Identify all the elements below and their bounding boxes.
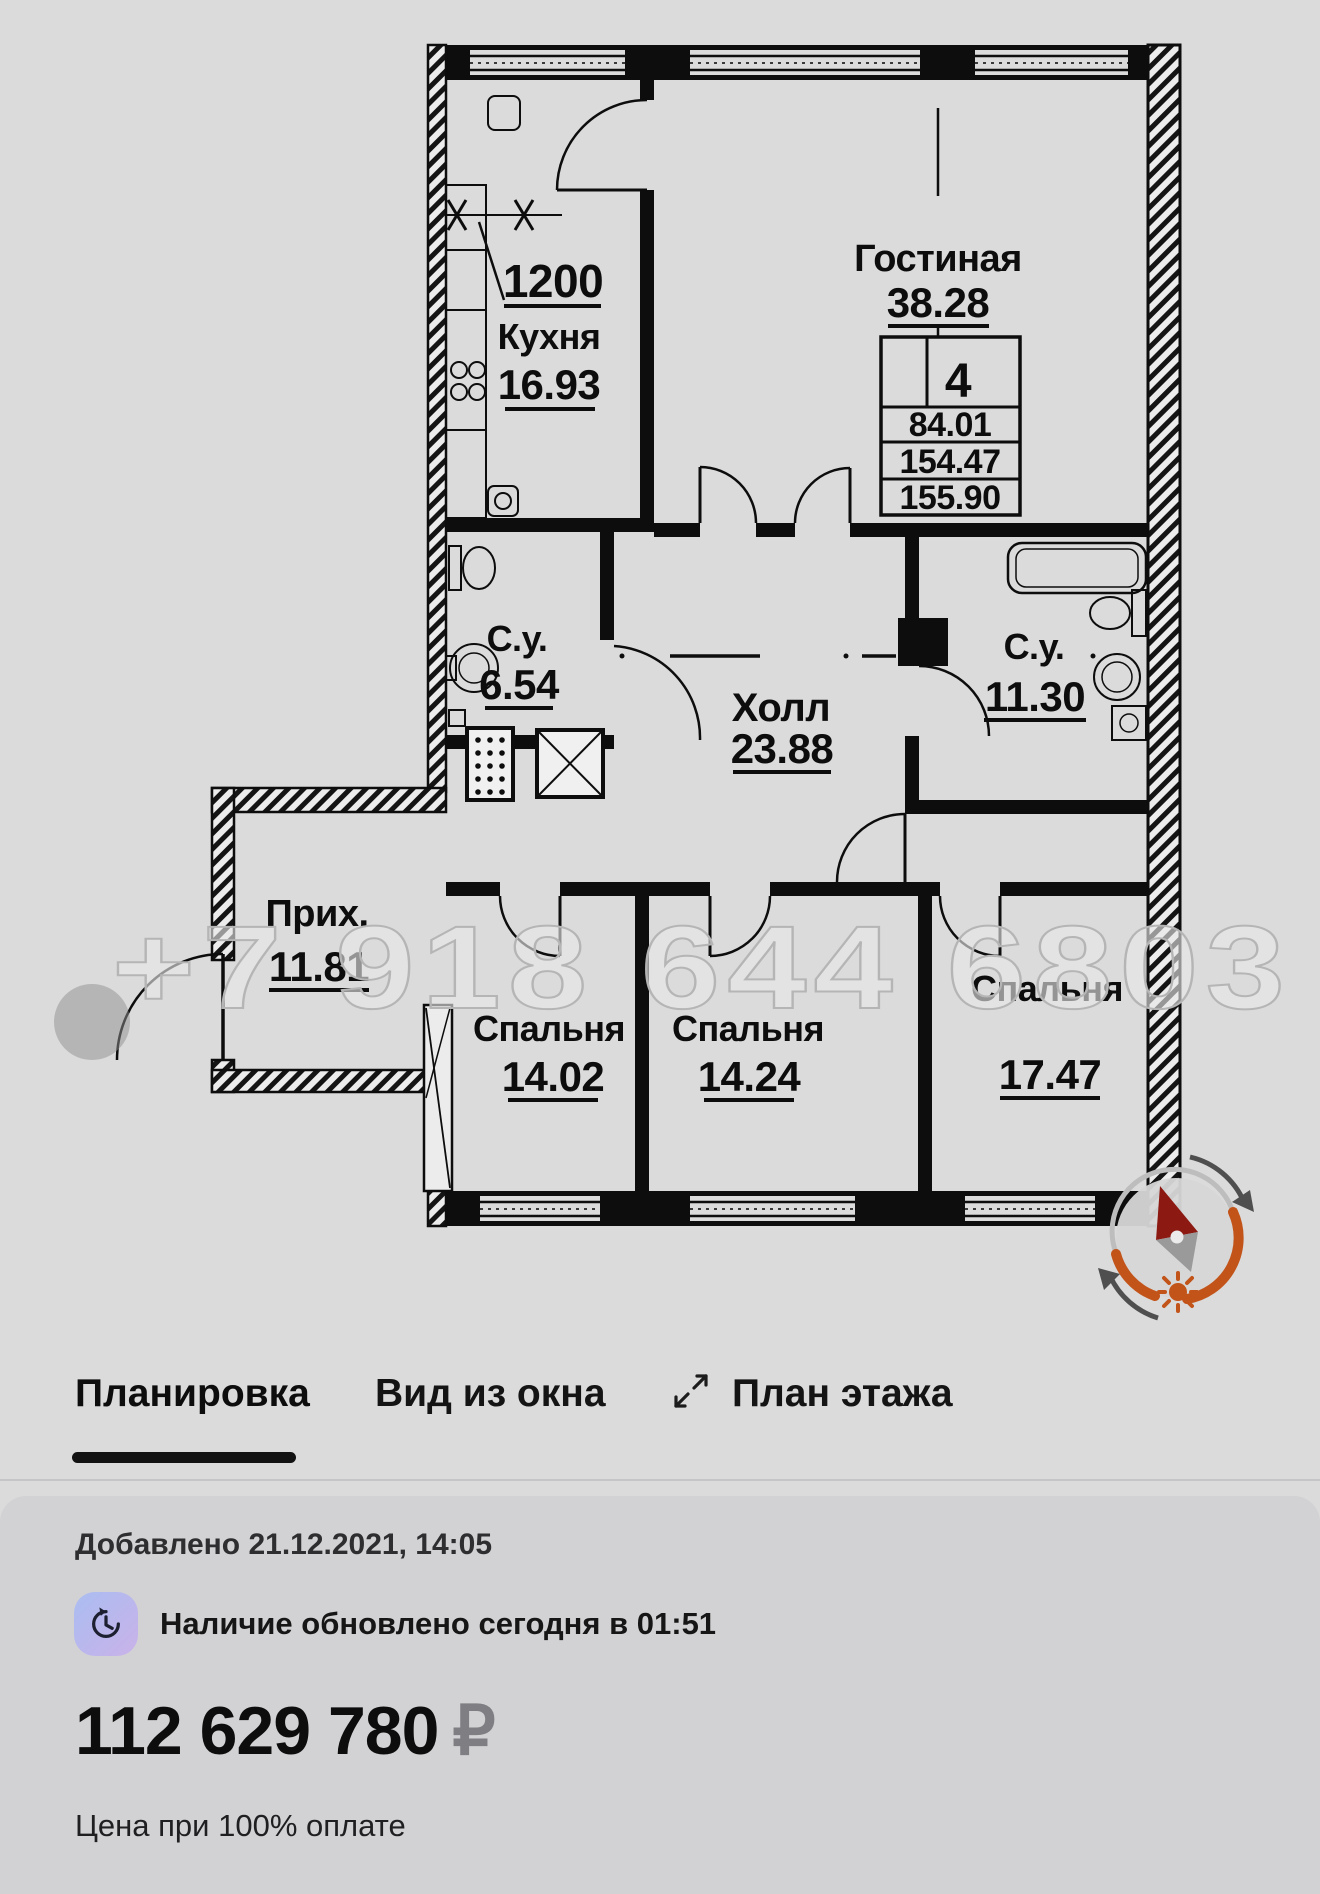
added-date: Добавлено 21.12.2021, 14:05 [75,1528,492,1562]
svg-text:14.24: 14.24 [698,1053,802,1100]
svg-text:11.30: 11.30 [985,673,1085,720]
room-label-bathroom-large: С.у. 11.30 [984,626,1086,720]
svg-text:17.47: 17.47 [999,1051,1102,1098]
svg-text:14.02: 14.02 [502,1053,605,1100]
table-total-area: 84.01 [909,406,992,444]
svg-text:Холл: Холл [732,686,830,730]
svg-text:6.54: 6.54 [479,661,560,708]
watermark-phone: +7 918 644 6803 [112,902,1292,1034]
window-top-living-2 [975,50,1128,75]
room-label-kitchen: 1200 Кухня 16.93 [498,255,604,409]
window-bottom-bedroom2 [690,1196,855,1221]
window-top-living-1 [690,50,920,75]
apartment-listing-screen: 4 84.01 154.47 155.90 1200 Кухня 16.93 Г… [0,0,1320,1894]
price-value: 112 629 780 [75,1693,438,1769]
svg-text:С.у.: С.у. [487,618,548,659]
svg-text:23.88: 23.88 [731,725,834,772]
availability-updated-icon [74,1592,138,1656]
active-tab-underline [72,1452,296,1463]
table-area-2: 154.47 [900,443,1001,481]
clock-refresh-icon [87,1605,125,1643]
room-label-bathroom-small: С.у. 6.54 [479,618,560,708]
window-bottom-bedroom1 [480,1196,600,1221]
availability-text: Наличие обновлено сегодня в 01:51 [160,1606,716,1642]
vent-shaft [898,618,948,666]
svg-text:С.у.: С.у. [1004,626,1065,667]
tab-divider [0,1479,1320,1481]
floor-plan-viewer[interactable]: 4 84.01 154.47 155.90 1200 Кухня 16.93 Г… [0,0,1320,1330]
kitchen-dimension: 1200 [503,255,603,307]
table-rooms-count: 4 [945,355,972,408]
table-area-3: 155.90 [900,479,1001,517]
price: 112 629 780₽ [75,1692,495,1771]
window-top-kitchen [470,50,625,75]
tab-window-view[interactable]: Вид из окна [375,1372,606,1416]
svg-text:Гостиная: Гостиная [854,238,1022,280]
room-label-living: Гостиная 38.28 [854,238,1022,326]
room-label-hall: Холл 23.88 [731,686,834,772]
tab-layout[interactable]: Планировка [75,1372,310,1416]
price-note: Цена при 100% оплате [75,1808,406,1844]
expand-icon[interactable] [668,1368,714,1414]
window-bottom-bedroom3 [965,1196,1095,1221]
svg-text:38.28: 38.28 [887,279,990,326]
compass-icon [1098,1157,1254,1318]
currency-symbol: ₽ [452,1693,494,1769]
sun-icon [1159,1273,1197,1311]
svg-text:Кухня: Кухня [498,316,601,357]
svg-text:16.93: 16.93 [498,361,601,408]
details-card: Добавлено 21.12.2021, 14:05 Наличие обно… [0,1496,1320,1894]
floor-plan-drawing: 4 84.01 154.47 155.90 1200 Кухня 16.93 Г… [0,0,1320,1330]
tab-floor-plan[interactable]: План этажа [732,1372,953,1416]
